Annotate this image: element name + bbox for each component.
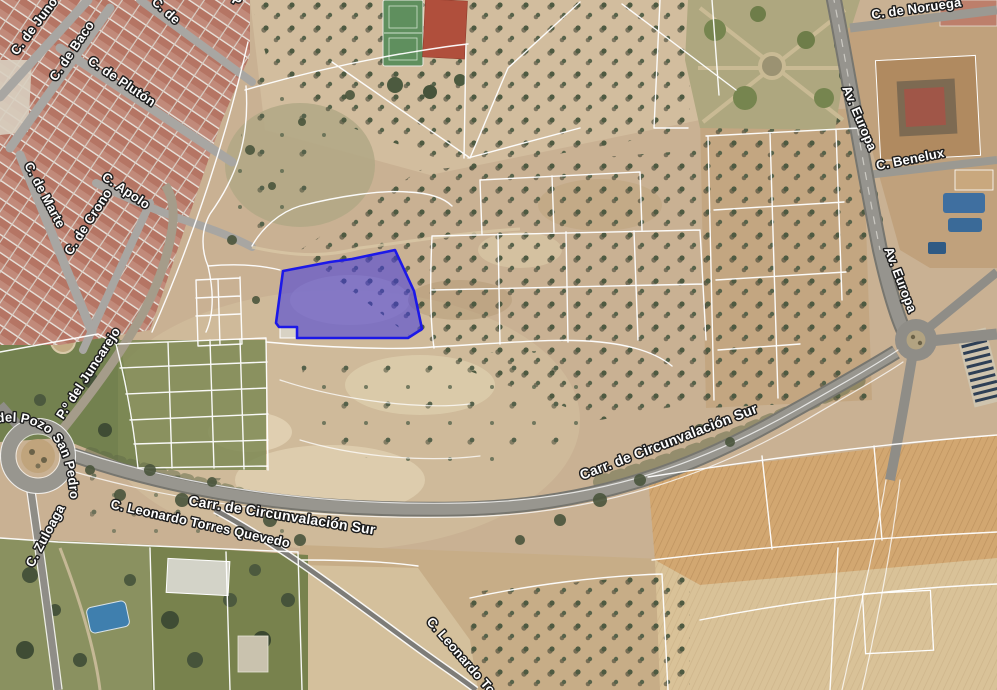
satellite-map[interactable]: C. de Juno C. de Baco C. de Plutón C. de… [0,0,997,690]
map-canvas: C. de Juno C. de Baco C. de Plutón C. de… [0,0,997,690]
parcel-notch-building [280,327,296,338]
greenhouse [166,558,230,595]
roundabout-right [895,319,937,361]
plowed-fields [648,434,997,690]
